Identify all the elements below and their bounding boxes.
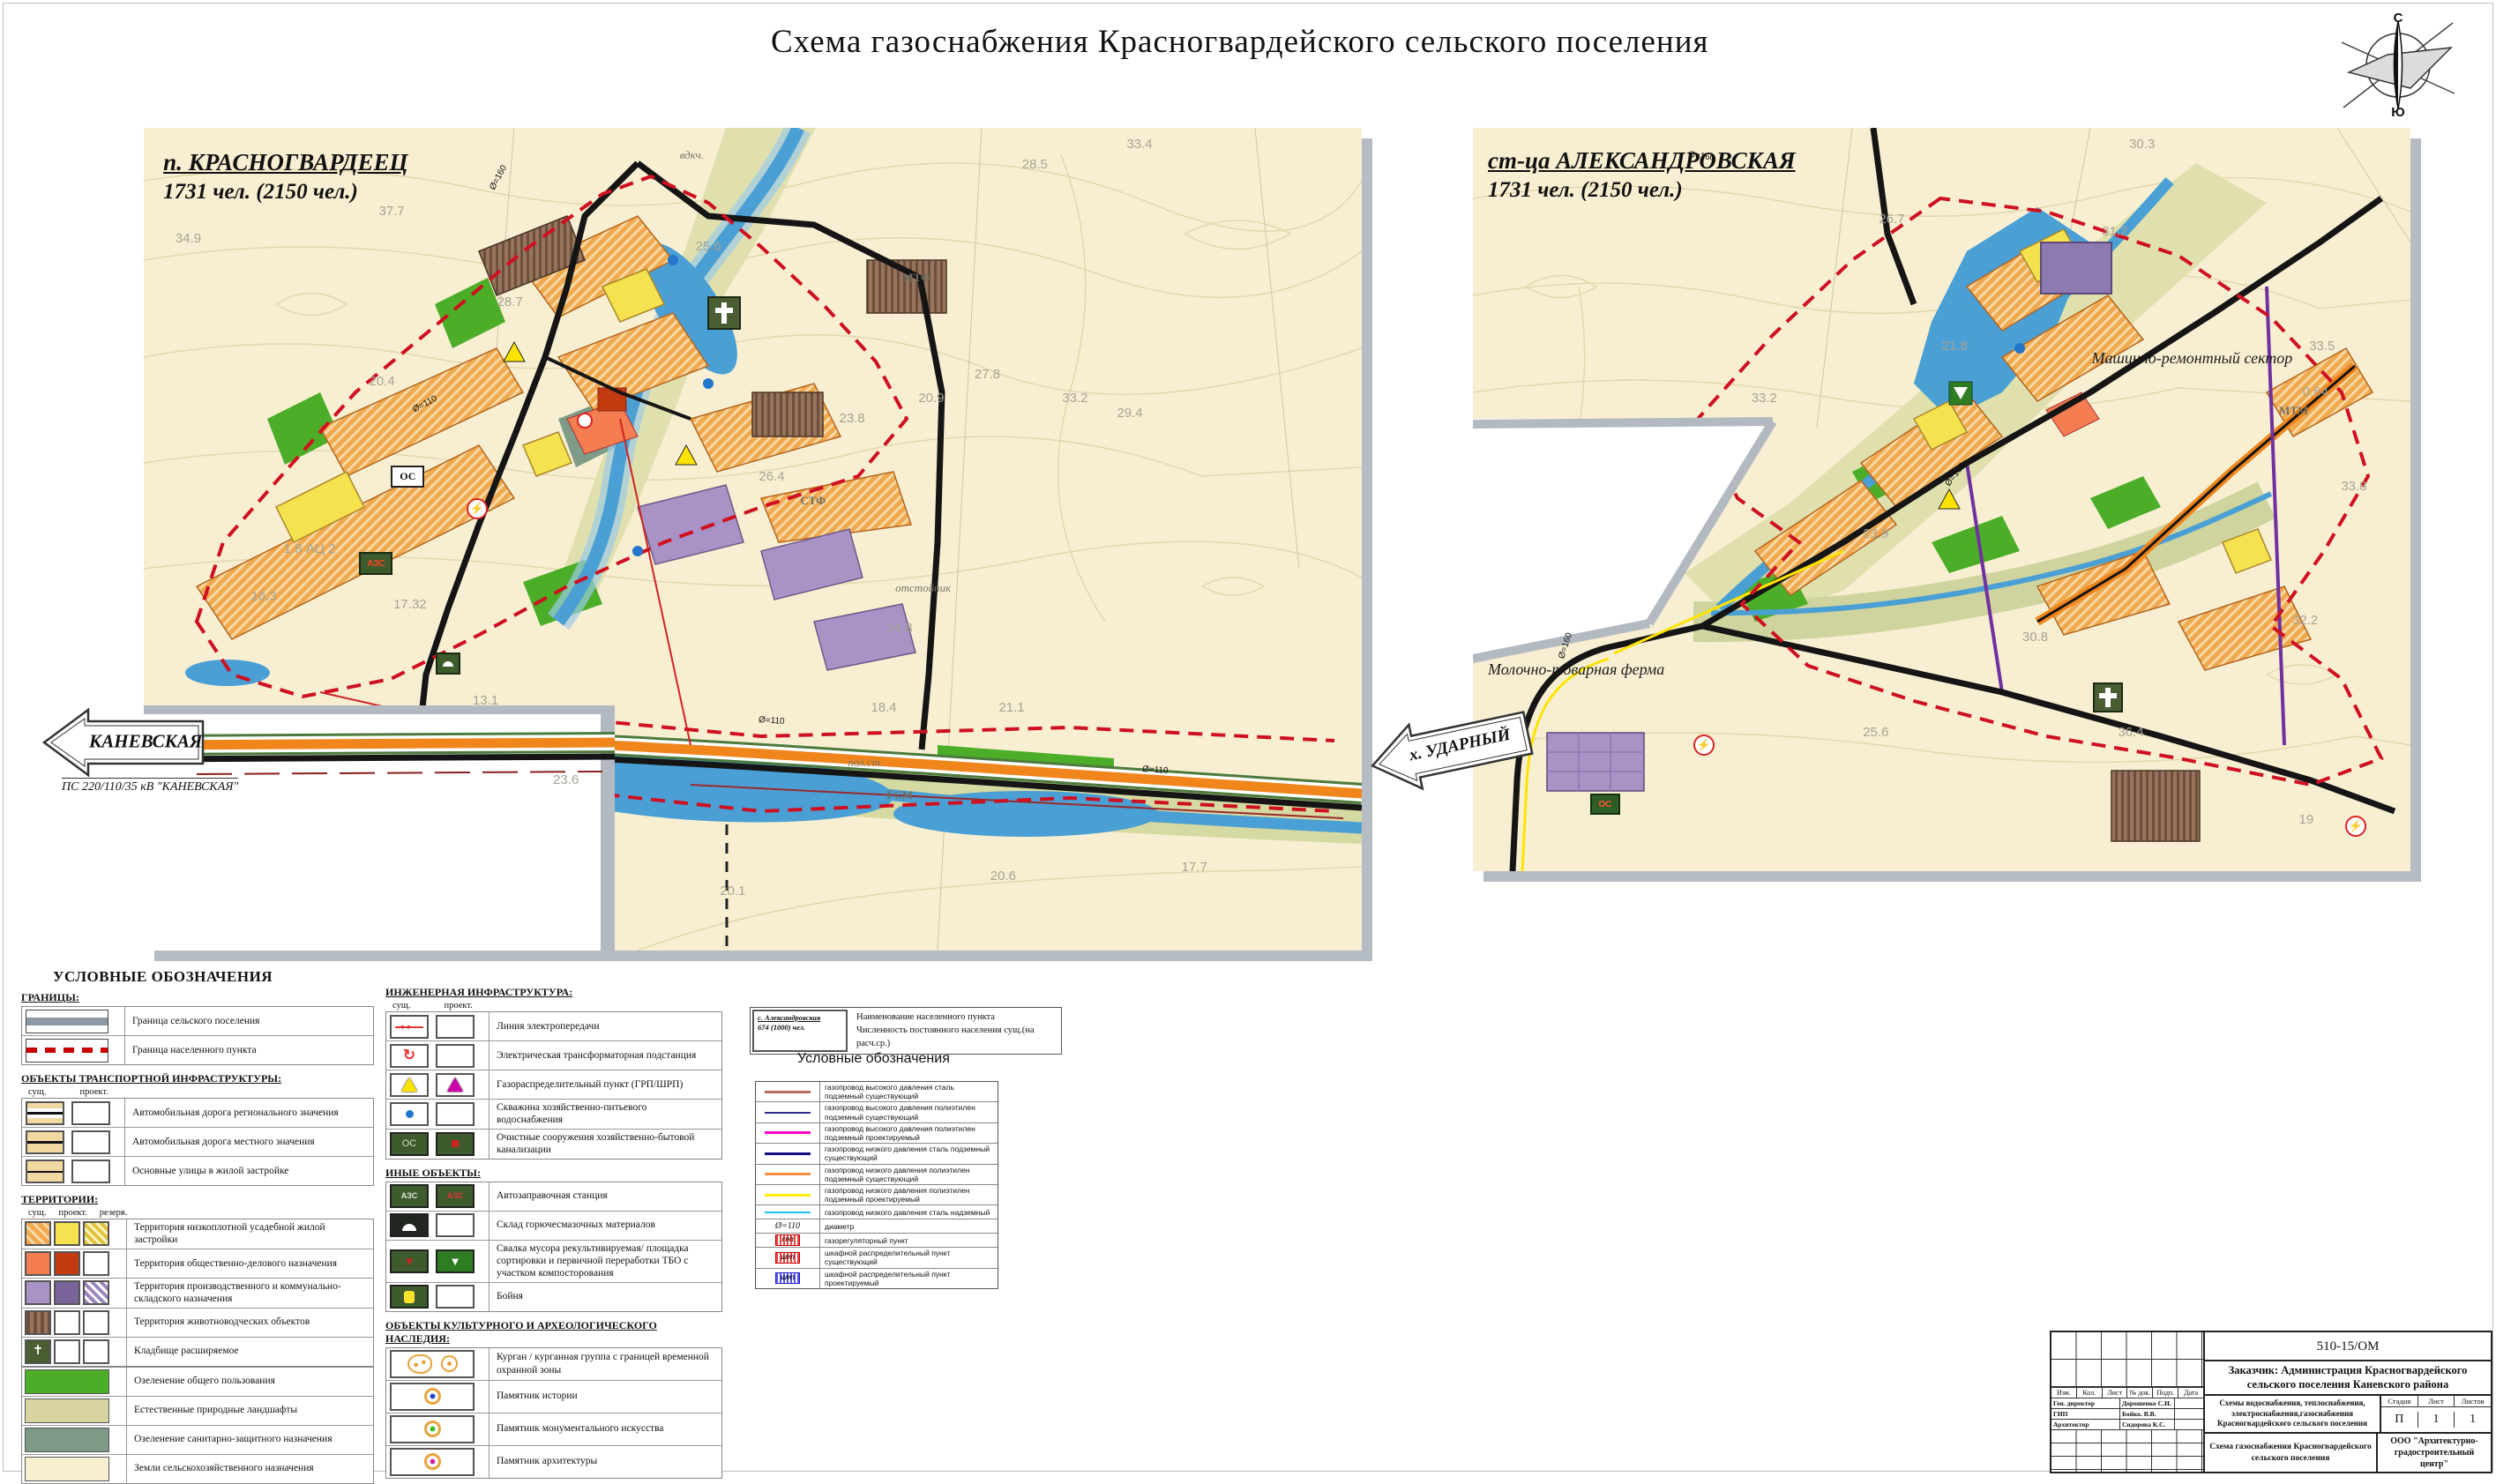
legend-swatch-existing: ОС xyxy=(390,1132,429,1156)
sheet-name: Схема газоснабжения Красногвардейского с… xyxy=(2205,1434,2378,1472)
legend-swatch-planned xyxy=(54,1310,80,1335)
legend-label: Граница сельского поселения xyxy=(125,1013,266,1029)
legend-swatch-reserve xyxy=(83,1310,109,1335)
pipe-line-label: газопровод высокого давления полиэтилен … xyxy=(820,1123,998,1143)
right-map-population: 1731 чел. (2150 чел.) xyxy=(1488,178,1796,203)
legend-label: Электрическая трансформаторная подстанци… xyxy=(489,1048,703,1063)
drawing-sheet: Схема газоснабжения Красногвардейского с… xyxy=(3,3,2493,1472)
legend-label: Естественные природные ландшафты xyxy=(127,1402,304,1418)
legend-row: Территория животноводческих объектов xyxy=(22,1309,373,1338)
legend-swatch-existing xyxy=(390,1285,429,1309)
pipes-legend-row: ШРП шкафной распределительный пункт прое… xyxy=(756,1269,998,1288)
legend-swatch-existing xyxy=(390,1044,429,1068)
legend-label: Основные улицы в жилой застройке xyxy=(125,1163,295,1179)
pipes-legend-row: газопровод высокого давления полиэтилен … xyxy=(756,1123,998,1144)
pipes-legend-row: ГРП газорегуляторный пункт xyxy=(756,1234,998,1248)
settlement-sample-desc: Наименование населенного пункта Численно… xyxy=(849,1008,1061,1054)
title-block-column-header: № док. xyxy=(2127,1388,2153,1398)
legend-swatch-planned xyxy=(71,1130,110,1154)
pipe-line-label: газопровод низкого давления сталь подзем… xyxy=(820,1144,998,1163)
legend-row: Озеленение санитарно-защитного назначени… xyxy=(22,1426,373,1455)
legend-swatch-existing xyxy=(26,1101,64,1125)
pipes-legend-row: газопровод высокого давления полиэтилен … xyxy=(756,1102,998,1122)
settlement-sample: с. Александровская 674 (1000) чел. xyxy=(752,1010,848,1052)
legend-swatch-reserve xyxy=(83,1339,109,1364)
legend-swatch-planned xyxy=(54,1280,80,1305)
legend-swatch-planned xyxy=(54,1251,80,1276)
pipe-line-swatch xyxy=(765,1212,811,1213)
legend-swatch xyxy=(390,1383,475,1411)
pipe-line-swatch xyxy=(765,1091,811,1093)
legend-section-transport: ОБЪЕКТЫ ТРАНСПОРТНОЙ ИНФРАСТРУКТУРЫ: xyxy=(21,1072,374,1085)
title-block-empty-grid xyxy=(2051,1430,2203,1472)
map-aleksandrovskaya-graphic xyxy=(1473,128,2410,871)
pipe-line-swatch xyxy=(765,1173,811,1175)
pipe-line-swatch xyxy=(765,1112,811,1114)
title-block: Изм.Кол.Лист№ док.Подп.Дата Ген. директо… xyxy=(2050,1331,2492,1473)
heritage-table: Курган / курганная группа с границей вре… xyxy=(385,1347,722,1479)
legend-row: АЗС АЗС Автозаправочная станция xyxy=(386,1182,721,1212)
legend-swatch-existing: ▼ xyxy=(390,1249,429,1273)
title-block-column-header: Дата xyxy=(2178,1388,2203,1398)
legend-swatch-planned xyxy=(71,1160,110,1183)
transport-table: Автомобильная дорога регионального значе… xyxy=(21,1098,374,1186)
legend-swatch-existing xyxy=(390,1015,429,1039)
legend-label: Территория общественно-делового назначен… xyxy=(127,1256,344,1271)
pipe-line-label: газопровод низкого давления сталь надзем… xyxy=(820,1207,994,1218)
pipe-line-swatch: ШРП xyxy=(775,1272,800,1284)
pipe-line-swatch: Ø=110 xyxy=(775,1221,800,1231)
title-block-column-header: Кол. xyxy=(2077,1388,2103,1398)
legend-row: Памятник истории xyxy=(386,1381,721,1413)
map-krasnogvardeets-graphic xyxy=(144,128,1362,951)
company-name: ООО "Архитектурно-градостроительный цент… xyxy=(2378,1434,2491,1472)
legend-swatch-existing xyxy=(25,1310,51,1335)
legend-label: Автозаправочная станция xyxy=(489,1188,615,1204)
legend-label: Автомобильная дорога регионального значе… xyxy=(125,1105,346,1121)
legend-section-territories: ТЕРРИТОРИИ: xyxy=(21,1193,374,1206)
territories-wide-table: Озеленение общего пользования Естественн… xyxy=(21,1367,374,1484)
legend-label: Свалка мусора рекультивируемая/ площадка… xyxy=(489,1241,721,1282)
legend-row: Основные улицы в жилой застройке xyxy=(22,1157,373,1185)
stage-value: 1 xyxy=(2418,1412,2455,1428)
legend-swatch-existing xyxy=(390,1102,429,1126)
columns-header: сущ.проект.резерв. xyxy=(21,1208,374,1218)
title-block-column-header: Подп. xyxy=(2153,1388,2178,1398)
legend-row: Линия электропередачи xyxy=(386,1012,721,1041)
legend-swatch-planned: ▼ xyxy=(436,1249,475,1273)
stage-value: П xyxy=(2381,1412,2418,1428)
legend-section-borders: ГРАНИЦЫ: xyxy=(21,991,374,1004)
pipes-legend-row: газопровод высокого давления сталь подзе… xyxy=(756,1082,998,1102)
customer-line: Заказчик: Администрация Красногвардейско… xyxy=(2205,1361,2491,1396)
legend-label: Памятник монументального искусства xyxy=(489,1421,670,1436)
legend-label: Озеленение общего пользования xyxy=(127,1373,282,1389)
legend-row: Территория низкоплотной усадебной жилой … xyxy=(22,1219,373,1249)
legend-row: Бойня xyxy=(386,1283,721,1311)
left-map-name: п. КРАСНОГВАРДЕЕЦ xyxy=(163,149,407,176)
role-title: ГИП xyxy=(2051,1409,2120,1419)
legend-label: Линия электропередачи xyxy=(489,1018,607,1034)
title-block-role-row: ГИП Бойко. В.В. xyxy=(2051,1409,2203,1420)
sign-kanevskaya-label: КАНЕВСКАЯ xyxy=(89,731,202,753)
stage-value: 1 xyxy=(2455,1412,2491,1428)
legend-swatch-reserve xyxy=(83,1280,109,1305)
role-signature xyxy=(2175,1409,2203,1419)
legend-swatch-existing xyxy=(26,1160,64,1183)
project-name: Схемы водоснабжения, теплоснабжения, эле… xyxy=(2205,1396,2381,1432)
right-map-name: ст-ца АЛЕКСАНДРОВСКАЯ xyxy=(1488,147,1796,175)
stage-grid: СтадияЛистЛистов П11 xyxy=(2381,1396,2491,1432)
right-map-header: ст-ца АЛЕКСАНДРОВСКАЯ 1731 чел. (2150 че… xyxy=(1488,147,1796,203)
territories-table: Территория низкоплотной усадебной жилой … xyxy=(21,1219,374,1367)
legend-swatch-existing xyxy=(390,1073,429,1097)
legend-label: Территория животноводческих объектов xyxy=(127,1314,317,1330)
role-name: Бойко. В.В. xyxy=(2120,1409,2175,1419)
pipes-legend-row: ШРП шкафной распределительный пункт суще… xyxy=(756,1248,998,1268)
pipe-line-label: газопровод низкого давления полиэтилен п… xyxy=(820,1185,998,1204)
legend-section-engineering: ИНЖЕНЕРНАЯ ИНФРАСТРУКТУРА: xyxy=(385,986,722,999)
pipes-legend-row: газопровод низкого давления сталь подзем… xyxy=(756,1144,998,1164)
pipes-legend-row: газопровод низкого давления полиэтилен п… xyxy=(756,1165,998,1185)
role-name: Сидорова К.С. xyxy=(2120,1420,2175,1429)
legend-swatch xyxy=(390,1415,475,1443)
pipe-line-swatch: ГРП xyxy=(775,1234,800,1246)
columns-header: сущ.проект. xyxy=(385,1001,722,1010)
legend-swatch-planned xyxy=(436,1285,475,1309)
pipe-line-label: газорегуляторный пункт xyxy=(820,1235,913,1246)
pipes-legend-row: газопровод низкого давления полиэтилен п… xyxy=(756,1185,998,1205)
legend-row: Озеленение общего пользования xyxy=(22,1368,373,1397)
pipe-line-swatch: ШРП xyxy=(775,1252,800,1264)
compass-north-label: С xyxy=(2394,11,2403,26)
legend-swatch-planned xyxy=(436,1015,475,1039)
page-title: Схема газоснабжения Красногвардейского с… xyxy=(771,23,1709,61)
legend-label: Бойня xyxy=(489,1288,530,1304)
legend-section-heritage: ОБЪЕКТЫ КУЛЬТУРНОГО И АРХЕОЛОГИЧЕСКОГО Н… xyxy=(385,1319,722,1346)
role-title: Ген. директор xyxy=(2051,1398,2120,1408)
legend-swatch-existing xyxy=(390,1213,429,1237)
pipes-legend-title: Условные обозначения xyxy=(797,1051,950,1067)
legend-row: Территория производственного и коммуналь… xyxy=(22,1279,373,1309)
title-block-signatures: Изм.Кол.Лист№ док.Подп.Дата Ген. директо… xyxy=(2051,1332,2205,1472)
legend-section-other: ИНЫЕ ОБЪЕКТЫ: xyxy=(385,1167,722,1180)
compass-graphic xyxy=(2336,12,2460,116)
map-aleksandrovskaya[interactable]: ст-ца АЛЕКСАНДРОВСКАЯ 1731 чел. (2150 че… xyxy=(1473,128,2410,871)
columns-header: сущ.проект. xyxy=(21,1087,374,1097)
legend-row: Территория общественно-делового назначен… xyxy=(22,1249,373,1279)
legend-row: Газораспределительный пункт (ГРП/ШРП) xyxy=(386,1070,721,1100)
legend-row: Автомобильная дорога регионального значе… xyxy=(22,1099,373,1128)
legend-row: Естественные природные ландшафты xyxy=(22,1397,373,1426)
stage-header: Листов xyxy=(2455,1396,2491,1406)
role-name: Дорошенко С.И. xyxy=(2120,1398,2175,1408)
left-map-population: 1731 чел. (2150 чел.) xyxy=(163,180,407,205)
legend-swatch xyxy=(25,1398,109,1423)
document-code: 510-15/ОМ xyxy=(2205,1332,2491,1361)
legend-row: ✝ Кладбище расширяемое xyxy=(22,1338,373,1366)
legend-swatch-existing xyxy=(25,1280,51,1305)
other-objects-table: АЗС АЗС Автозаправочная станция Склад го… xyxy=(385,1182,722,1312)
pipes-legend-row: Ø=110 диаметр xyxy=(756,1219,998,1234)
left-map-header: п. КРАСНОГВАРДЕЕЦ 1731 чел. (2150 чел.) xyxy=(163,149,407,205)
legend-label: Автомобильная дорога местного значения xyxy=(125,1134,322,1150)
legend-swatch xyxy=(25,1369,109,1394)
legend-label: Территория производственного и коммуналь… xyxy=(127,1279,373,1308)
legend-label: Кладбище расширяемое xyxy=(127,1343,246,1359)
legend-row: ▼ ▼ Свалка мусора рекультивируемая/ площ… xyxy=(386,1241,721,1283)
legend-swatch-planned xyxy=(436,1102,475,1126)
stage-header: Стадия xyxy=(2381,1396,2418,1406)
legend-row: Электрическая трансформаторная подстанци… xyxy=(386,1041,721,1070)
substation-label: ПС 220/110/35 кВ "КАНЕВСКАЯ" xyxy=(62,778,238,794)
legend-label: Территория низкоплотной усадебной жилой … xyxy=(127,1219,373,1249)
legend-label: Курган / курганная группа с границей вре… xyxy=(489,1349,721,1378)
title-block-column-headers: Изм.Кол.Лист№ док.Подп.Дата xyxy=(2051,1388,2203,1398)
settlement-sample-box: с. Александровская 674 (1000) чел. Наиме… xyxy=(750,1007,1062,1055)
pipe-line-swatch xyxy=(765,1152,811,1155)
legend-swatch-existing: АЗС xyxy=(390,1184,429,1208)
pipe-line-swatch xyxy=(765,1194,811,1197)
legend-row: Склад горючесмазочных материалов xyxy=(386,1212,721,1241)
legend-label: Граница населенного пункта xyxy=(125,1042,264,1058)
legend-label: Памятник архитектуры xyxy=(489,1453,604,1469)
legend-label: Очистные сооружения хозяйственно-бытовой… xyxy=(489,1130,721,1159)
legend-label: Склад горючесмазочных материалов xyxy=(489,1217,662,1233)
borders-table: Граница сельского поселения Граница насе… xyxy=(21,1006,374,1065)
legend-label: Газораспределительный пункт (ГРП/ШРП) xyxy=(489,1077,690,1092)
title-block-empty-grid xyxy=(2051,1332,2203,1388)
legend-column-middle: ИНЖЕНЕРНАЯ ИНФРАСТРУКТУРА: сущ.проект. Л… xyxy=(385,979,722,1479)
title-block-roles: Ген. директор Дорошенко С.И. ГИП Бойко. … xyxy=(2051,1398,2203,1430)
pipes-legend-table: газопровод высокого давления сталь подзе… xyxy=(755,1081,998,1289)
legend-swatch xyxy=(25,1428,109,1452)
legend-swatch-existing xyxy=(25,1251,51,1276)
legend-swatch-reserve xyxy=(83,1221,109,1246)
legend-swatch-existing xyxy=(26,1130,64,1154)
legend-row: Граница сельского поселения xyxy=(22,1007,373,1036)
legend-label: Памятник истории xyxy=(489,1388,585,1404)
compass-south-label: Ю xyxy=(2391,105,2404,120)
pipe-line-label: шкафной распределительный пункт проектир… xyxy=(820,1269,998,1288)
stage-header: Лист xyxy=(2418,1396,2455,1406)
compass-rose-icon: С Ю xyxy=(2336,12,2460,116)
legend-swatch-planned xyxy=(54,1339,80,1364)
legend-swatch-reserve xyxy=(83,1251,109,1276)
legend-swatch-planned xyxy=(54,1221,80,1246)
legend-swatch-existing xyxy=(25,1221,51,1246)
legend-row: Скважина хозяйственно-питьевого водоснаб… xyxy=(386,1100,721,1130)
pipe-line-label: шкафной распределительный пункт существу… xyxy=(820,1248,998,1267)
title-block-role-row: Архитектор Сидорова К.С. xyxy=(2051,1420,2203,1430)
legend-swatch-planned xyxy=(436,1132,475,1156)
pipe-line-label: диаметр xyxy=(820,1221,858,1232)
title-block-role-row: Ген. директор Дорошенко С.И. xyxy=(2051,1398,2203,1409)
pipes-legend-row: газопровод низкого давления сталь надзем… xyxy=(756,1205,998,1219)
legend-row: Курган / курганная группа с границей вре… xyxy=(386,1348,721,1381)
title-block-main: 510-15/ОМ Заказчик: Администрация Красно… xyxy=(2205,1332,2491,1472)
title-block-column-header: Лист xyxy=(2103,1388,2128,1398)
legend-swatch xyxy=(26,1039,108,1063)
legend-column-left: ГРАНИЦЫ: Граница сельского поселения Гра… xyxy=(21,984,374,1484)
legend-label: Скважина хозяйственно-питьевого водоснаб… xyxy=(489,1100,721,1129)
legend-swatch xyxy=(390,1350,475,1378)
role-signature xyxy=(2175,1398,2203,1408)
pipe-line-label: газопровод высокого давления сталь подзе… xyxy=(820,1082,998,1101)
legend-row: Памятник архитектуры xyxy=(386,1446,721,1478)
legend-row: Граница населенного пункта xyxy=(22,1036,373,1064)
legend-row: Автомобильная дорога местного значения xyxy=(22,1128,373,1157)
pipe-line-label: газопровод низкого давления полиэтилен п… xyxy=(820,1165,998,1184)
legend-swatch-planned xyxy=(71,1101,110,1125)
legend-row: Земли сельскохозяйственного назначения xyxy=(22,1455,373,1483)
pipe-line-swatch xyxy=(765,1131,811,1134)
role-signature xyxy=(2175,1420,2203,1429)
legend-row: Памятник монументального искусства xyxy=(386,1413,721,1446)
title-block-column-header: Изм. xyxy=(2051,1388,2077,1398)
legend-label: Озеленение санитарно-защитного назначени… xyxy=(127,1431,339,1447)
legend-swatch-planned xyxy=(436,1044,475,1068)
engineering-table: Линия электропередачи Электрическая тран… xyxy=(385,1011,722,1160)
sign-kanevskaya: КАНЕВСКАЯ xyxy=(39,707,206,778)
legend-swatch xyxy=(26,1010,108,1033)
role-title: Архитектор xyxy=(2051,1420,2120,1429)
legend-swatch xyxy=(390,1448,475,1476)
pipe-line-label: газопровод высокого давления полиэтилен … xyxy=(820,1102,998,1122)
legend-swatch xyxy=(25,1457,109,1481)
legend-row: ОС Очистные сооружения хозяйственно-быто… xyxy=(386,1130,721,1159)
legend-swatch-planned: АЗС xyxy=(436,1184,475,1208)
legend-swatch-existing: ✝ xyxy=(25,1339,51,1364)
legend-swatch-planned xyxy=(436,1073,475,1097)
legend-swatch-planned xyxy=(436,1213,475,1237)
map-krasnogvardeets[interactable]: п. КРАСНОГВАРДЕЕЦ 1731 чел. (2150 чел.) … xyxy=(144,128,1362,951)
